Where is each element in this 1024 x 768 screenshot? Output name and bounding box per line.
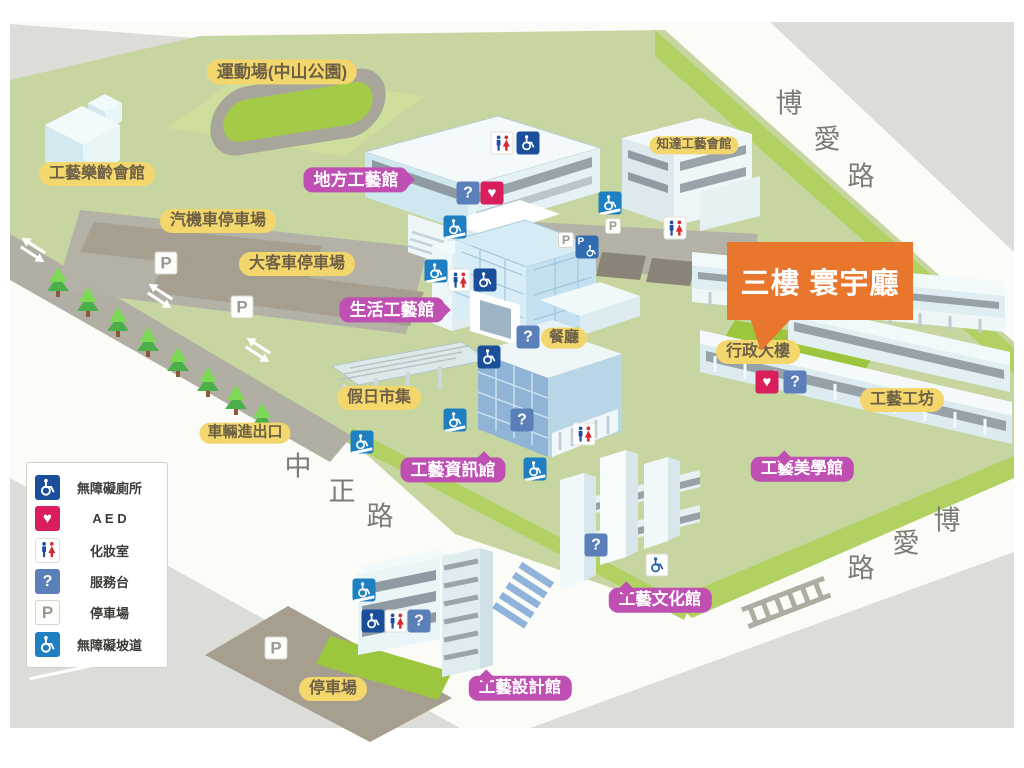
legend-label: 服務台 — [60, 572, 159, 591]
restroom-icon — [385, 610, 408, 633]
legend-row: 無障礙廁所 — [35, 472, 159, 503]
parking-icon: P — [231, 296, 254, 319]
accessible-toilet-icon — [35, 475, 60, 500]
campus-map: 博 愛 路 中 正 路 博 愛 路 運動場(中山公園) 工藝樂齡會館 汽機車停車… — [0, 0, 1024, 768]
legend-label: 化妝室 — [60, 541, 159, 560]
label-craft-workshop: 工藝工坊 — [860, 388, 944, 412]
ramp-icon — [351, 431, 374, 454]
label-admin-building: 行政大樓 — [716, 340, 800, 364]
label-restaurant: 餐廳 — [541, 328, 587, 349]
label-zhida-hall: 知達工藝會館 — [649, 136, 738, 154]
restroom-icon — [664, 217, 687, 240]
label-sports-field: 運動場(中山公園) — [207, 59, 357, 84]
service-desk-icon: ? — [35, 569, 60, 594]
label-culture-hall: 工藝文化館 — [609, 588, 712, 613]
parking-icon: P — [155, 252, 178, 275]
service-desk-icon: ? — [408, 610, 431, 633]
accessible-toilet-icon — [362, 610, 385, 633]
service-desk-icon: ? — [585, 534, 608, 557]
label-car-moto-parking: 汽機車停車場 — [160, 209, 276, 233]
road-name-zhongzheng: 路 — [367, 495, 394, 534]
accessible-icon — [646, 554, 669, 577]
aed-icon: ♥ — [481, 182, 504, 205]
legend-row: P 停車場 — [35, 597, 159, 628]
road-name-boai-top: 路 — [848, 155, 875, 194]
parking-icon: P — [35, 600, 60, 625]
ramp-icon — [425, 260, 448, 283]
label-south-parking: 停車場 — [299, 677, 367, 701]
legend-label: 停車場 — [60, 603, 159, 622]
service-desk-icon: ? — [784, 371, 807, 394]
road-name-zhongzheng: 正 — [329, 470, 356, 509]
aed-icon: ♥ — [35, 506, 60, 531]
ramp-icon — [444, 409, 467, 432]
legend: 無障礙廁所 ♥ A E D 化妝室 ? 服務台 P 停車場 無障礙坡道 — [26, 462, 168, 668]
label-holiday-market: 假日市集 — [337, 386, 421, 410]
restroom-icon — [491, 132, 514, 155]
label-craft-info-hall: 工藝資訊館 — [401, 457, 506, 482]
aed-icon: ♥ — [756, 371, 779, 394]
legend-label: A E D — [60, 511, 159, 526]
label-design-hall: 工藝設計館 — [469, 676, 572, 701]
road-name-boai-bottom: 愛 — [893, 522, 920, 561]
parking-icon: P — [265, 637, 288, 660]
ramp-icon — [444, 216, 467, 239]
legend-label: 無障礙廁所 — [60, 478, 159, 497]
parking-stalls — [646, 258, 696, 286]
accessible-toilet-icon — [478, 346, 501, 369]
road-name-boai-bottom: 博 — [934, 499, 961, 538]
parking-icon: P — [558, 232, 574, 248]
road-name-boai-top: 博 — [776, 82, 803, 121]
ramp-icon — [524, 458, 547, 481]
accessible-toilet-icon — [517, 132, 540, 155]
legend-label: 無障礙坡道 — [60, 635, 159, 654]
label-life-craft-hall: 生活工藝館 — [340, 297, 445, 322]
ramp-icon — [599, 192, 622, 215]
accessible-parking-icon: P — [576, 236, 599, 259]
service-desk-icon: ? — [457, 182, 480, 205]
restroom-icon — [35, 538, 60, 563]
label-vehicle-gate: 車輛進出口 — [199, 423, 290, 444]
restroom-icon — [448, 269, 471, 292]
legend-row: ? 服務台 — [35, 566, 159, 597]
road-name-boai-top: 愛 — [814, 118, 841, 157]
parking-stalls — [596, 252, 646, 280]
service-desk-icon: ? — [511, 409, 534, 432]
label-aesthetics-hall: 工藝美學館 — [751, 457, 854, 482]
label-senior-hall: 工藝樂齡會館 — [39, 162, 155, 186]
road-name-boai-bottom: 路 — [848, 547, 875, 586]
legend-row: 無障礙坡道 — [35, 628, 159, 659]
building-zhida-hall — [622, 118, 760, 231]
legend-row: 化妝室 — [35, 535, 159, 566]
ramp-icon — [353, 579, 376, 602]
road-name-zhongzheng: 中 — [285, 445, 312, 484]
label-bus-parking: 大客車停車場 — [239, 252, 355, 276]
callout-text: 三樓 寰宇廳 — [740, 260, 899, 302]
ramp-icon — [35, 632, 60, 657]
accessible-toilet-icon — [474, 269, 497, 292]
restroom-icon — [573, 423, 596, 446]
legend-row: ♥ A E D — [35, 503, 159, 534]
service-desk-icon: ? — [517, 326, 540, 349]
parking-icon: P — [605, 218, 621, 234]
label-local-craft-hall: 地方工藝館 — [304, 167, 409, 192]
location-callout: 三樓 寰宇廳 — [727, 242, 913, 320]
